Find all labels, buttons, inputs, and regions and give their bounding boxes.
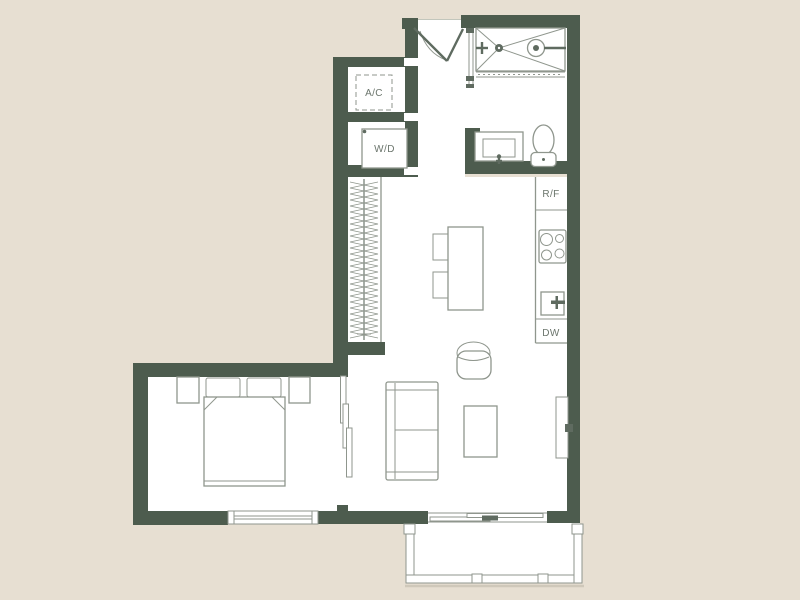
- dining-stool: [433, 272, 449, 298]
- balcony-railing-bottom: [406, 575, 582, 583]
- bedroom-window: [228, 511, 318, 524]
- shower-door-handle: [466, 76, 474, 81]
- wd-door-jamb-gap: [404, 113, 418, 121]
- lounge-chair-seat: [457, 351, 491, 379]
- kitchen-faucet-bar: [556, 296, 559, 309]
- wd-door-pivot-icon: [363, 130, 367, 134]
- door-track-nub: [337, 505, 348, 512]
- entry-hall-floor: [418, 28, 465, 177]
- fridge-label: R/F: [542, 189, 559, 200]
- shower-head-center: [533, 45, 539, 51]
- living-bottom-wall: [318, 511, 428, 524]
- toilet-flush-icon: [542, 158, 545, 161]
- dining-table: [448, 227, 483, 310]
- nightstand: [289, 377, 310, 403]
- sofa: [386, 382, 438, 480]
- pillow: [247, 378, 281, 397]
- bedroom-bottom-wall: [133, 511, 228, 525]
- ac-door-jamb-gap: [404, 58, 418, 66]
- railing-post: [572, 524, 583, 534]
- railing-post: [404, 524, 415, 534]
- dishwasher-label: DW: [542, 328, 560, 339]
- closet-bottom-wall: [333, 342, 385, 355]
- shower-door-hinge-bottom: [466, 84, 474, 88]
- dining-stool: [433, 234, 449, 260]
- bedroom-window-jamb: [228, 511, 234, 524]
- shower-drain-center: [498, 47, 500, 49]
- balcony-corner-wall: [547, 511, 580, 523]
- balcony-sliding-door-panel: [467, 514, 543, 518]
- ac-label: A/C: [365, 88, 383, 99]
- floor-plan-page: R/F DW A/C W/D: [0, 0, 800, 600]
- wd-label: W/D: [374, 144, 395, 155]
- side-window-handle-icon: [565, 424, 573, 432]
- bed: [204, 397, 285, 486]
- shower-door-hinge-top: [466, 28, 474, 33]
- balcony-floor: [408, 523, 580, 581]
- toilet-bowl: [533, 125, 554, 155]
- entry-left-wall-stub: [402, 18, 418, 29]
- bedroom-sliding-door-panel: [347, 428, 353, 477]
- bedroom-top-wall: [133, 363, 348, 377]
- top-exterior-wall: [461, 15, 580, 28]
- railing-post: [538, 574, 548, 583]
- coffee-table: [464, 406, 497, 457]
- balcony-door-handle-icon: [482, 516, 498, 521]
- left-exterior-wall: [333, 57, 348, 377]
- right-exterior-wall: [567, 15, 580, 523]
- bedroom-window-jamb: [312, 511, 318, 524]
- bedroom-left-wall: [133, 363, 148, 525]
- nightstand: [177, 377, 199, 403]
- railing-post: [472, 574, 482, 583]
- floor-plan-canvas: R/F DW A/C W/D: [0, 0, 800, 600]
- pillow: [206, 378, 240, 397]
